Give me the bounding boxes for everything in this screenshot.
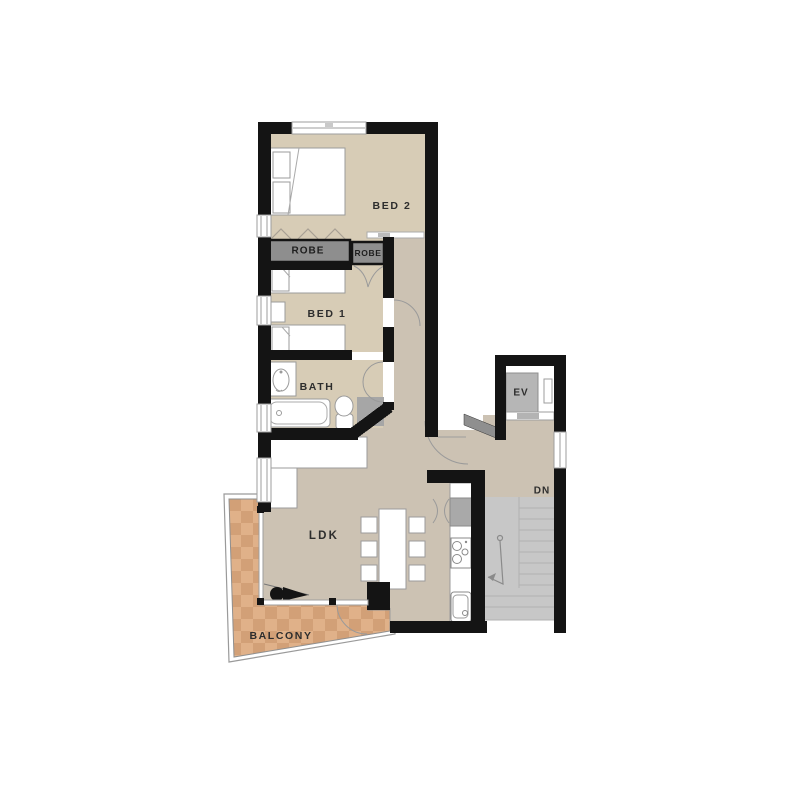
window-tick xyxy=(325,123,333,127)
pillow xyxy=(272,268,289,291)
stairwell xyxy=(485,497,554,633)
stairs-down-label: DN xyxy=(534,486,550,497)
glass-post xyxy=(257,506,264,513)
bed1-label: BED 1 xyxy=(308,308,347,320)
elevator-panel xyxy=(544,379,552,403)
bath-label: BATH xyxy=(300,381,335,393)
bath-window xyxy=(257,404,271,432)
telescope-body xyxy=(270,587,284,601)
chair xyxy=(409,541,425,557)
chair xyxy=(361,565,377,581)
chair xyxy=(361,541,377,557)
knob xyxy=(465,541,467,543)
kitchen-aisle-floor xyxy=(390,605,450,623)
elevator-door xyxy=(517,413,539,419)
faucet-dot xyxy=(280,371,283,374)
chair xyxy=(361,517,377,533)
robe-left-label: ROBE xyxy=(292,246,325,257)
glass-post xyxy=(329,598,336,605)
sliding-door-handle xyxy=(378,233,390,237)
bed1-window xyxy=(257,296,271,325)
fridge xyxy=(450,498,472,526)
chair xyxy=(409,517,425,533)
pillow xyxy=(272,327,289,351)
sofa-chaise xyxy=(270,468,297,508)
floor-plan-canvas xyxy=(0,0,800,800)
floor-plan: BED 2 ROBE ROBE BED 1 BATH EV DN LDK BAL… xyxy=(0,0,800,800)
balcony-label: BALCONY xyxy=(249,630,312,642)
glass-post xyxy=(257,598,264,605)
bathtub xyxy=(266,399,330,427)
robe-right-label: ROBE xyxy=(355,248,382,258)
dining-table xyxy=(379,509,406,589)
stair-landing xyxy=(485,620,554,633)
balcony-glass-wall-west xyxy=(259,509,263,605)
bed2-sliding-door xyxy=(367,232,424,238)
bed2-side-window xyxy=(257,215,271,237)
chair xyxy=(409,565,425,581)
pillow xyxy=(273,152,290,178)
elevator-label: EV xyxy=(513,388,528,399)
ldk-label: LDK xyxy=(309,530,339,542)
ldk-window xyxy=(257,458,271,502)
toilet-bowl xyxy=(335,396,353,416)
balcony-glass-wall-south xyxy=(259,600,368,605)
pillow xyxy=(273,182,290,213)
bed2-label: BED 2 xyxy=(373,200,412,212)
sofa-seat xyxy=(270,437,367,468)
corridor-floor xyxy=(394,237,425,352)
